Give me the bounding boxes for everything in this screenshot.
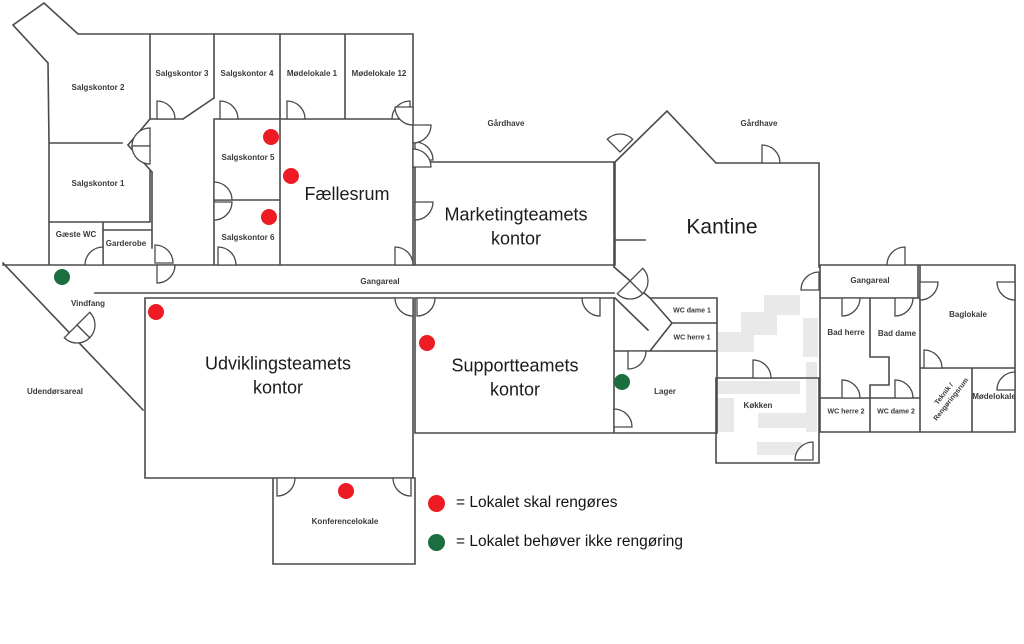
door-arc (395, 298, 413, 316)
room-label-salgskontor-1: Salgskontor 1 (72, 179, 125, 189)
room-label-modelokale-12: Mødelokale 12 (352, 69, 407, 79)
door-arc (582, 298, 600, 316)
door-arc (214, 182, 232, 200)
door-arc (997, 372, 1015, 390)
door-arc (157, 265, 175, 283)
status-dot-needs-cleaning (283, 168, 299, 184)
green-dot-icon (428, 534, 445, 551)
legend-item-no-cleaning: = Lokalet behøver ikke rengøring (428, 533, 683, 551)
door-arc (842, 380, 860, 398)
room-label-baglokale: Baglokale (949, 310, 987, 320)
status-dot-needs-cleaning (261, 209, 277, 225)
room-label-lager: Lager (654, 387, 676, 397)
status-dot-needs-cleaning (419, 335, 435, 351)
door-arc (628, 351, 646, 369)
door-arc (132, 128, 150, 146)
room-label-wc-dame-1: WC dame 1 (673, 306, 711, 315)
kitchen-counter (758, 413, 816, 428)
door-arc (753, 360, 771, 378)
room-label-gangareal: Gangareal (360, 277, 399, 287)
door-arc (214, 202, 232, 220)
room-label-udendorsareal: Udendørsareal (27, 387, 83, 397)
door-arc (395, 107, 413, 125)
door-arc (417, 298, 435, 316)
stairs (718, 295, 800, 352)
status-dot-needs-cleaning (263, 129, 279, 145)
door-arc (220, 101, 238, 119)
door-arc (924, 350, 942, 368)
door-arc (413, 125, 431, 143)
door-arc (157, 101, 175, 119)
room-label-bad-dame: Bad dame (878, 329, 916, 339)
room-label-kantine: Kantine (686, 213, 757, 240)
door-arc (762, 145, 780, 163)
status-dot-no-cleaning-needed (614, 374, 630, 390)
door-arc (920, 282, 938, 300)
room-label-salgskontor-6: Salgskontor 6 (222, 233, 275, 243)
room-label-faellesrum: Fællesrum (304, 182, 389, 206)
room-label-marketingteamets-kontor: Marketingteamets kontor (444, 203, 587, 252)
room-label-salgskontor-5: Salgskontor 5 (222, 153, 275, 163)
door-arc (277, 478, 295, 496)
room-label-modelokale-1: Mødelokale 1 (287, 69, 337, 79)
legend: = Lokalet skal rengøres = Lokalet behøve… (428, 494, 683, 572)
door-arc (85, 247, 103, 265)
door-arc (415, 202, 433, 220)
room-label-kokken: Køkken (744, 401, 773, 411)
room-label-konferencelokale: Konferencelokale (312, 517, 379, 527)
room-label-gaeste-wc: Gæste WC (56, 230, 96, 240)
door-arc (887, 247, 905, 265)
counter (803, 318, 818, 357)
door-arc (895, 380, 913, 398)
room-label-gardhave-vest: Gårdhave (488, 119, 525, 129)
status-dot-no-cleaning-needed (54, 269, 70, 285)
room-label-bad-herre: Bad herre (827, 328, 864, 338)
door-arc (895, 298, 913, 316)
door-arc (218, 247, 236, 265)
room-label-wc-herre-2: WC herre 2 (828, 407, 865, 416)
door-arc (395, 247, 413, 265)
room-label-gangareal-2: Gangareal (850, 276, 889, 286)
room-label-salgskontor-4: Salgskontor 4 (221, 69, 274, 79)
legend-label-needs-cleaning: = Lokalet skal rengøres (456, 494, 618, 512)
room-label-wc-herre-1: WC herre 1 (674, 333, 711, 342)
door-arc (155, 245, 173, 263)
legend-item-needs-cleaning: = Lokalet skal rengøres (428, 494, 683, 512)
room-label-supportteamets-kontor: Supportteamets kontor (451, 354, 578, 403)
door-arc (393, 478, 411, 496)
door-arc (287, 101, 305, 119)
room-label-wc-dame-2: WC dame 2 (877, 407, 915, 416)
room-label-garderobe: Garderobe (106, 239, 146, 249)
legend-label-no-cleaning: = Lokalet behøver ikke rengøring (456, 533, 683, 551)
room-label-salgskontor-2: Salgskontor 2 (72, 83, 125, 93)
room-label-modelokale: Mødelokale (972, 392, 1016, 402)
door-arc (132, 146, 150, 164)
kitchen-counter (757, 442, 802, 455)
status-dot-needs-cleaning (338, 483, 354, 499)
kitchen-counter (718, 381, 800, 394)
room-label-udviklingsteamets-kontor: Udviklingsteamets kontor (205, 352, 351, 401)
door-arc (614, 409, 632, 427)
room-label-salgskontor-3: Salgskontor 3 (156, 69, 209, 79)
door-arc (842, 298, 860, 316)
door-arc (801, 272, 819, 290)
door-arc (997, 282, 1015, 300)
red-dot-icon (428, 495, 445, 512)
floor-plan: Salgskontor 2Salgskontor 3Salgskontor 4M… (0, 0, 1024, 644)
kitchen-counter (717, 398, 734, 432)
room-label-gardhave-ost: Gårdhave (741, 119, 778, 129)
status-dot-needs-cleaning (148, 304, 164, 320)
room-label-vindfang: Vindfang (71, 299, 105, 309)
